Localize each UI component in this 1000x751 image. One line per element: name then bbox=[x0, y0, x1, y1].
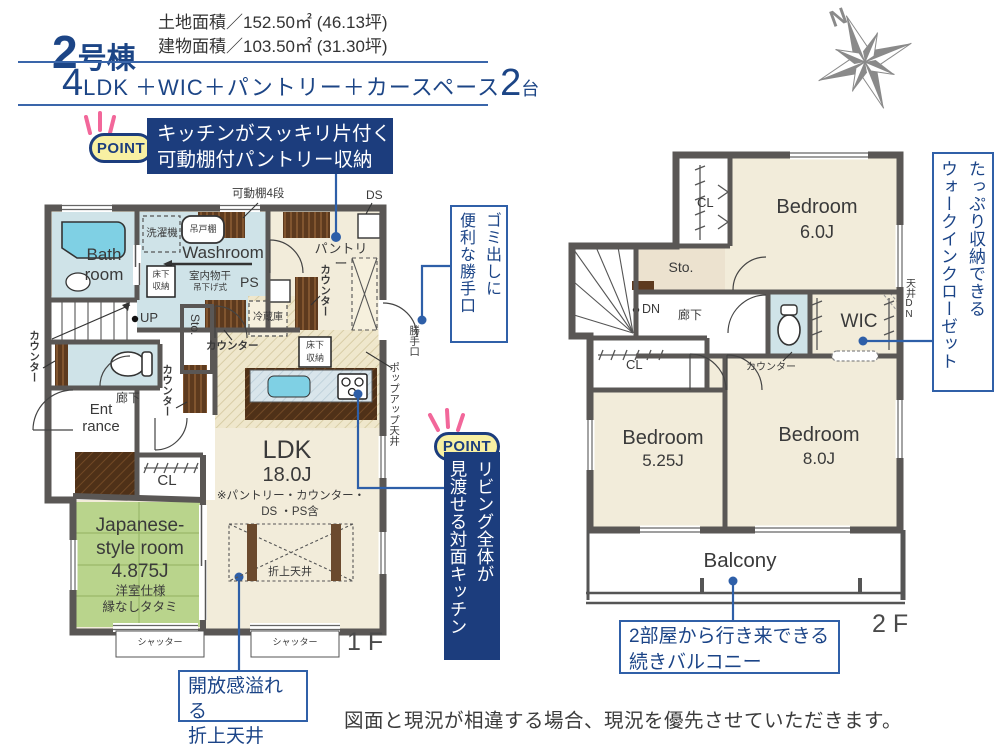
point-badge-1: POINT bbox=[89, 133, 153, 163]
label-closet-2f-bottom: CL bbox=[626, 358, 643, 373]
label-counter-left: カウンター bbox=[28, 330, 40, 396]
label-storage-2f: Sto. bbox=[661, 259, 701, 275]
layout-extras: ＋WIC＋パントリー＋カースペース bbox=[135, 75, 500, 100]
floorplan-page: 2号棟 土地面積／152.50㎡ (46.13坪) 建物面積／103.50㎡ (… bbox=[0, 0, 1000, 751]
point-2-box: リビング全体が 見渡せる対面キッチン bbox=[444, 452, 500, 660]
room-japanese: Japanese- style room 4.875J bbox=[80, 514, 200, 583]
room-balcony: Balcony bbox=[694, 549, 786, 573]
label-movable-shelf: 可動棚4段 bbox=[232, 188, 284, 201]
floor1-label: 1 F bbox=[347, 628, 383, 657]
room-bedroom3: Bedroom bbox=[769, 424, 869, 447]
label-closet-2f-top: CL bbox=[697, 196, 714, 211]
label-coffered-ceiling: 折上天井 bbox=[268, 566, 312, 579]
callout-back-door: ゴミ出しに 便利な勝手口 bbox=[450, 205, 508, 343]
callout-back-door-line1: ゴミ出しに bbox=[478, 212, 504, 336]
emphasis-rays-1 bbox=[86, 113, 114, 133]
point-1-line1: キッチンがスッキリ片付く bbox=[157, 121, 393, 147]
floor2-label: 2 F bbox=[872, 610, 908, 639]
callout-balcony: 2部屋から行き来できる 続きバルコニー bbox=[619, 620, 840, 674]
label-shutter-2: シャッター bbox=[253, 637, 337, 647]
label-storage-1f: Sto. bbox=[187, 314, 201, 362]
label-bedroom2-size: 5.25J bbox=[613, 451, 713, 471]
label-up: UP bbox=[140, 311, 158, 326]
label-ps: PS bbox=[240, 274, 259, 290]
callout-ceiling-line2: 折上天井 bbox=[188, 724, 298, 749]
disclaimer-text: 図面と現況が相違する場合、現況を優先させていただきます。 bbox=[344, 710, 902, 732]
layout-cars-unit: 台 bbox=[521, 79, 539, 100]
point-2-line2: 見渡せる対面キッチン bbox=[444, 460, 471, 652]
label-underfloor-storage-2: 床下 収納 bbox=[299, 339, 331, 365]
label-ceiling-dn: 天井DN bbox=[903, 278, 915, 342]
label-fridge: 冷蔵庫 bbox=[250, 312, 286, 324]
label-ldk-note1: ※パントリー・カウンター・ bbox=[216, 490, 366, 503]
layout-cars: 2 bbox=[500, 62, 521, 106]
label-japanese-note1: 洋室仕様 bbox=[98, 584, 183, 598]
label-ldk-note2: DS ・PS含 bbox=[245, 506, 335, 519]
label-laundry: 洗濯機 bbox=[145, 227, 179, 239]
label-hallway-2f: 廊下 bbox=[678, 309, 702, 323]
label-drying-type: 吊下げ式 bbox=[187, 283, 233, 293]
label-ds: DS bbox=[366, 189, 383, 203]
layout-line: 4LDK＋WIC＋パントリー＋カースペース2台 bbox=[62, 62, 539, 106]
label-back-door: 勝手口 bbox=[408, 325, 420, 367]
emphasis-rays-2 bbox=[430, 410, 463, 430]
label-counter-mid: カウンター bbox=[206, 340, 259, 352]
label-indoor-drying: 室内物干 bbox=[185, 270, 235, 282]
label-underfloor-storage-1: 床下 収納 bbox=[147, 268, 175, 292]
label-shutter-1: シャッター bbox=[118, 637, 202, 647]
callout-balcony-line1: 2部屋から行き来できる bbox=[629, 624, 830, 650]
layout-rooms: 4 bbox=[62, 62, 83, 106]
compass-icon bbox=[800, 0, 930, 127]
label-counter-pantry: カウンター bbox=[319, 264, 331, 330]
point-1-line2: 可動棚付パントリー収納 bbox=[157, 147, 393, 173]
label-hanging-shelf: 吊戸棚 bbox=[183, 224, 223, 234]
point-1-box: キッチンがスッキリ片付く 可動棚付パントリー収納 bbox=[147, 118, 393, 174]
label-counter-hall: カウンター bbox=[161, 364, 173, 426]
label-dn: DN bbox=[642, 302, 660, 316]
building-area: 建物面積／103.50㎡ (31.30坪) bbox=[158, 37, 388, 57]
label-japanese-note2: 縁なしタタミ bbox=[92, 600, 188, 614]
room-washroom: Washroom bbox=[168, 243, 278, 263]
layout-ldk: LDK bbox=[83, 75, 129, 100]
point-badge-1-label: POINT bbox=[97, 140, 145, 157]
callout-balcony-line2: 続きバルコニー bbox=[629, 650, 830, 676]
callout-wic-line1: たっぷり収納できる bbox=[961, 160, 989, 384]
point-2-line1: リビング全体が bbox=[471, 460, 498, 652]
room-ldk: LDK bbox=[252, 436, 322, 465]
label-bedroom1-size: 6.0J bbox=[767, 222, 867, 243]
callout-wic: たっぷり収納できる ウォークインクローゼット bbox=[932, 152, 994, 392]
room-bath: Bath room bbox=[72, 245, 136, 284]
label-popup-ceiling: ポップアップ天井 bbox=[388, 362, 400, 466]
room-entrance: Ent rance bbox=[76, 401, 126, 436]
room-bedroom2: Bedroom bbox=[613, 427, 713, 450]
room-bedroom1: Bedroom bbox=[767, 196, 867, 219]
callout-back-door-line2: 便利な勝手口 bbox=[452, 212, 478, 336]
land-area: 土地面積／152.50㎡ (46.13坪) bbox=[158, 13, 388, 33]
label-closet-1f: CL bbox=[152, 472, 182, 489]
callout-ceiling: 開放感溢れる 折上天井 bbox=[178, 670, 308, 722]
callout-ceiling-line1: 開放感溢れる bbox=[188, 674, 298, 724]
label-bedroom3-size: 8.0J bbox=[769, 449, 869, 469]
room-wic: WIC bbox=[833, 311, 885, 333]
callout-wic-line2: ウォークインクローゼット bbox=[933, 160, 961, 384]
label-counter-2f: カウンター bbox=[746, 362, 796, 374]
label-ldk-size: 18.0J bbox=[252, 464, 322, 487]
header-divider-bottom bbox=[18, 104, 488, 106]
